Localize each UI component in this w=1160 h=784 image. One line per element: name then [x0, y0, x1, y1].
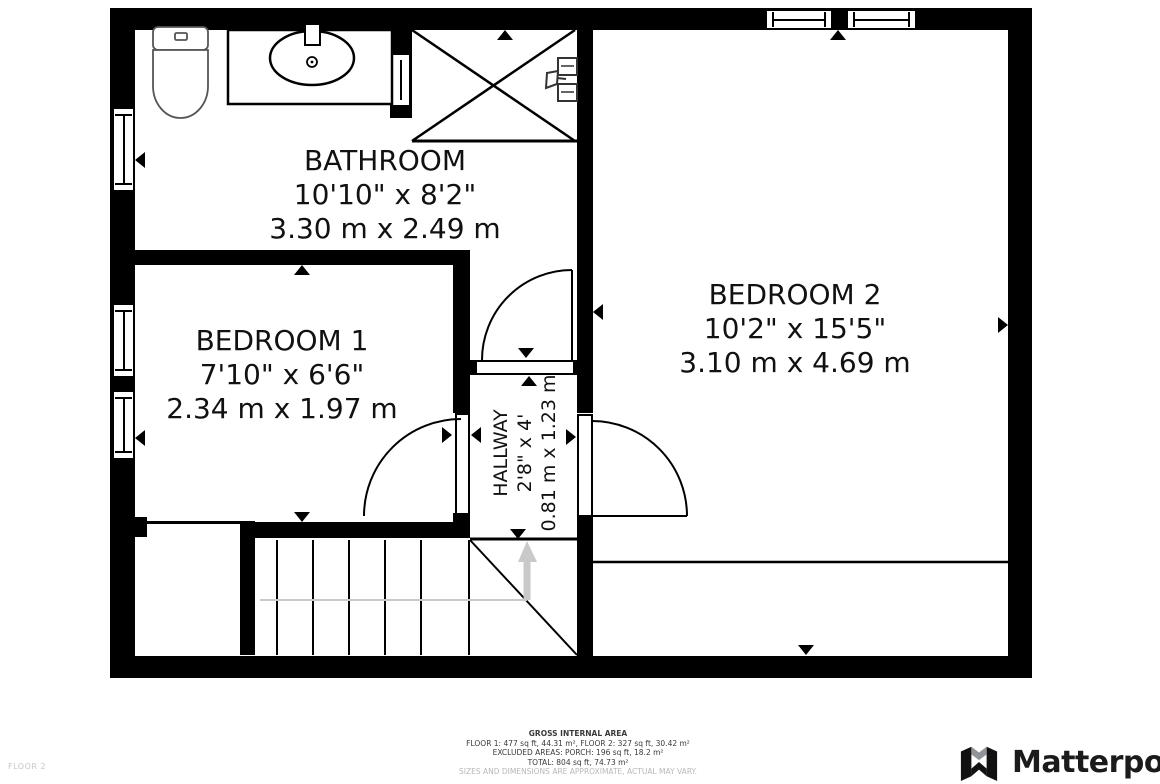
floor-number-label: FLOOR 2	[8, 762, 46, 771]
room-dim-m: 2.34 m x 1.97 m	[132, 392, 432, 426]
shower-icon	[412, 30, 577, 141]
room-label-bathroom: BATHROOM 10'10" x 8'2" 3.30 m x 2.49 m	[235, 144, 535, 246]
wall-marker-triangle	[518, 348, 534, 358]
wall-marker-triangle	[593, 304, 603, 320]
room-dim-ft: 10'10" x 8'2"	[235, 178, 535, 212]
shower-glass-panel	[391, 53, 411, 107]
matterport-logo: Matterport	[952, 742, 1160, 782]
wall-bedroom1-bottom	[240, 522, 470, 538]
room-dim-ft: 10'2" x 15'5"	[645, 312, 945, 346]
wall-marker-triangle	[566, 429, 576, 445]
wall-bathroom-bottom-a	[453, 360, 477, 375]
window	[112, 107, 135, 192]
room-label-bedroom2: BEDROOM 2 10'2" x 15'5" 3.10 m x 4.69 m	[645, 278, 945, 380]
room-dim-ft: 7'10" x 6'6"	[132, 358, 432, 392]
room-label-bedroom1: BEDROOM 1 7'10" x 6'6" 2.34 m x 1.97 m	[132, 324, 432, 426]
wall-marker-triangle	[998, 317, 1008, 333]
sink-icon	[228, 24, 392, 104]
wall-closet-top	[135, 521, 240, 524]
door-leaf-bedroom2	[577, 414, 593, 517]
wall-divider-lower	[577, 517, 593, 656]
area-summary-excluded: EXCLUDED AREAS: PORCH: 196 sq ft, 18.2 m…	[378, 748, 778, 758]
wall-divider-upper	[577, 8, 593, 413]
area-summary-disclaimer: SIZES AND DIMENSIONS ARE APPROXIMATE, AC…	[378, 767, 778, 777]
window	[765, 9, 833, 30]
shower-valve-icon	[546, 58, 577, 101]
door-arc-bedroom2	[592, 421, 687, 516]
wall-closet-nub	[135, 517, 147, 537]
wall-outer-right	[1008, 8, 1032, 678]
matterport-logo-text: Matterport	[1012, 745, 1160, 780]
wall-marker-triangle	[471, 427, 481, 443]
door-arc-bathroom	[482, 270, 572, 360]
area-summary-total: TOTAL: 804 sq ft, 74.73 m²	[378, 758, 778, 768]
stair-up-arrow	[260, 541, 537, 600]
wall-closet-right	[240, 521, 255, 655]
toilet-icon	[153, 27, 208, 118]
wall-marker-triangle	[135, 430, 145, 446]
room-dim-ft: 2'8" x 4'	[513, 368, 537, 538]
room-label-hallway: HALLWAY 2'8" x 4' 0.81 m x 1.23 m	[489, 368, 563, 538]
room-name: BATHROOM	[235, 144, 535, 178]
wall-outer-bottom	[110, 656, 1032, 678]
room-name: BEDROOM 1	[132, 324, 432, 358]
area-summary: GROSS INTERNAL AREA FLOOR 1: 477 sq ft, …	[378, 729, 778, 777]
wall-bedroom1-right-a	[453, 250, 470, 413]
area-summary-title: GROSS INTERNAL AREA	[378, 729, 778, 739]
wall-marker-triangle	[294, 265, 310, 275]
door-leaf-bedroom1	[455, 413, 470, 515]
wall-marker-triangle	[135, 152, 145, 168]
wall-marker-triangle	[497, 30, 513, 40]
wall-marker-triangle	[798, 645, 814, 655]
room-dim-m: 0.81 m x 1.23 m	[537, 368, 561, 538]
room-dim-m: 3.10 m x 4.69 m	[645, 346, 945, 380]
wall-marker-triangle	[442, 427, 452, 443]
floorplan-page: BATHROOM 10'10" x 8'2" 3.30 m x 2.49 m B…	[0, 0, 1160, 784]
room-name: BEDROOM 2	[645, 278, 945, 312]
wall-marker-triangle	[830, 30, 846, 40]
window	[846, 9, 917, 30]
wall-bedroom1-top	[135, 250, 470, 265]
matterport-logo-icon	[952, 742, 1006, 782]
area-summary-floors: FLOOR 1: 477 sq ft, 44.31 m², FLOOR 2: 3…	[378, 739, 778, 749]
room-dim-m: 3.30 m x 2.49 m	[235, 212, 535, 246]
wall-marker-triangle	[294, 512, 310, 522]
room-name: HALLWAY	[489, 368, 513, 538]
staircase	[277, 539, 577, 655]
